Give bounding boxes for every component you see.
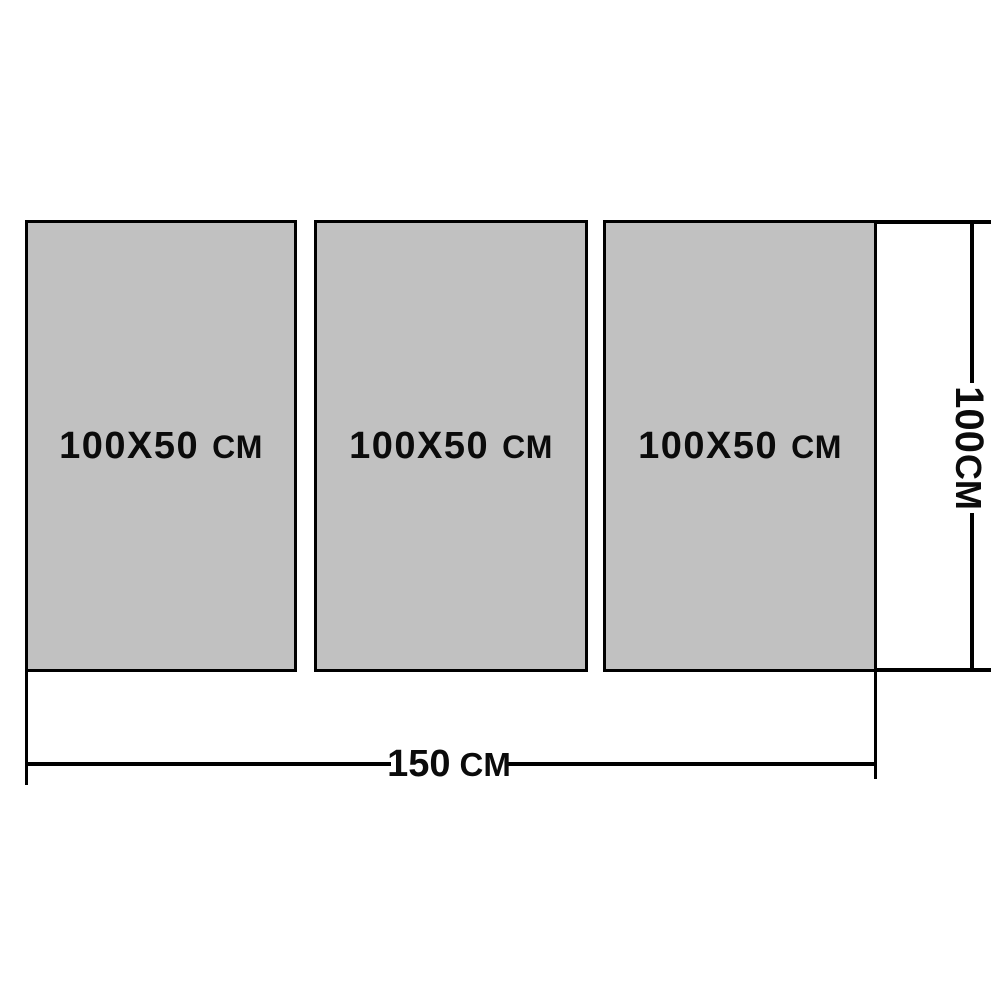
height-dimension-line-bottom-segment	[970, 513, 974, 672]
panel-2-size-unit: CM	[502, 429, 553, 465]
extension-line-left	[25, 672, 28, 785]
panel-1-size-label: 100X50CM	[59, 427, 263, 465]
height-dimension-label: 100CM	[949, 386, 989, 510]
panel-3-size-label: 100X50CM	[638, 427, 842, 465]
panel-3-size-value: 100X50	[638, 425, 778, 467]
panel-2-size-value: 100X50	[349, 425, 489, 467]
panel-1-size-unit: CM	[212, 429, 263, 465]
width-dimension-label: 150CM	[387, 745, 511, 783]
width-dimension-unit: CM	[460, 746, 511, 783]
width-dimension-line-left-segment	[25, 762, 391, 766]
panel-2-size-label: 100X50CM	[349, 427, 553, 465]
panel-1: 100X50CM	[25, 220, 297, 672]
panel-3: 100X50CM	[603, 220, 877, 672]
panel-2: 100X50CM	[314, 220, 588, 672]
height-dimension-line-top-segment	[970, 220, 974, 383]
panel-3-size-unit: CM	[791, 429, 842, 465]
width-dimension-value: 150	[387, 743, 450, 785]
width-dimension-line-right-segment	[506, 762, 877, 766]
panel-1-size-value: 100X50	[59, 425, 199, 467]
height-dimension-unit: CM	[948, 454, 989, 510]
height-dimension-value: 100	[947, 386, 991, 453]
dimension-diagram: 100X50CM 100X50CM 100X50CM 150CM 100CM	[0, 0, 1000, 1000]
